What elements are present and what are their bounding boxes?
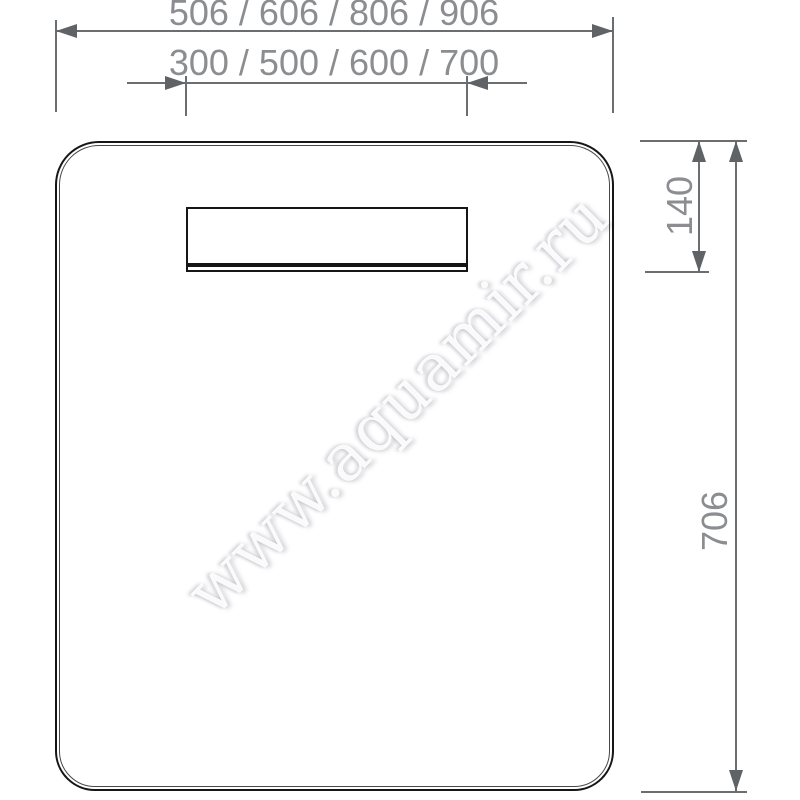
arrow-left-icon	[467, 76, 488, 90]
overall-height-dimension-line	[735, 141, 737, 791]
arrow-down-icon	[692, 251, 706, 272]
overall-width-dimension-label: 506 / 606 / 806 / 906	[0, 0, 668, 31]
light-offset-dimension-label: 140	[662, 176, 698, 236]
arrow-right-icon	[592, 24, 613, 38]
arrow-down-icon	[729, 770, 743, 791]
led-light-strip-line	[188, 263, 466, 267]
arrow-right-icon	[165, 76, 186, 90]
overall-height-dimension-label: 706	[697, 491, 733, 551]
extension-line-bottom-right	[641, 791, 747, 793]
overall-width-dimension-line	[56, 30, 613, 32]
arrow-up-icon	[692, 141, 706, 162]
light-width-dimension-label: 300 / 500 / 600 / 700	[0, 45, 668, 81]
mirror-dimension-diagram: www.aquamir.ru 506 / 606 / 806 / 906 300…	[0, 0, 800, 800]
arrow-left-icon	[56, 24, 77, 38]
arrow-up-icon	[729, 141, 743, 162]
led-light-panel	[186, 207, 468, 272]
